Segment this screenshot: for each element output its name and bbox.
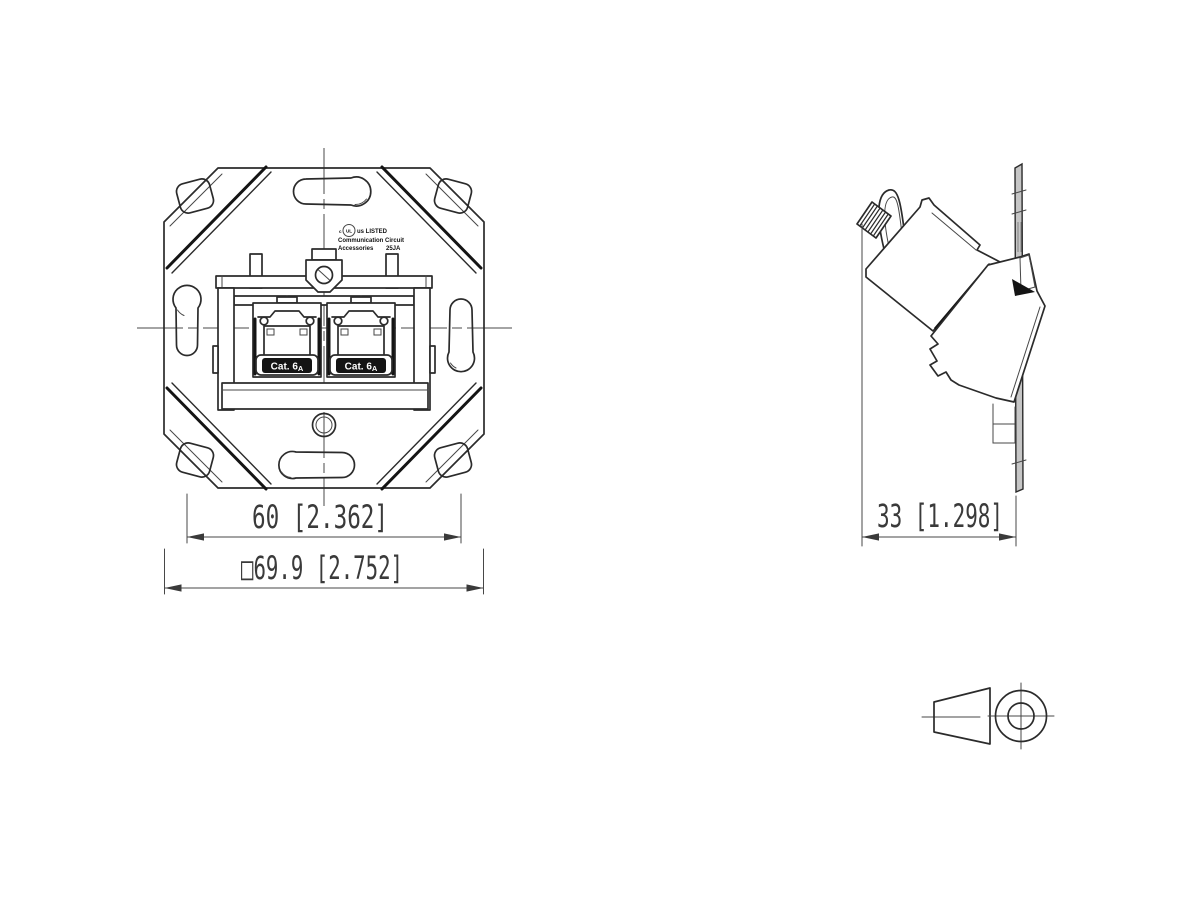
jack-label-main: Cat. 6 <box>345 362 373 373</box>
circle-crosshair <box>988 683 1054 749</box>
rj45-jack-left: Cat. 6A <box>253 297 321 377</box>
keyhole-top <box>294 177 371 206</box>
dim-text-60: 60 [2.362] <box>252 498 388 536</box>
cert-listed: us LISTED <box>357 229 388 235</box>
arrowhead-left <box>165 584 182 591</box>
jack-top-bump <box>277 297 297 303</box>
jack-label-text: Cat. 6A <box>345 362 378 374</box>
certification-mark: c UL us LISTED Communication Circuit Acc… <box>338 225 404 253</box>
cert-prefix: c <box>339 229 342 234</box>
rj45-jack-right: Cat. 6A <box>327 297 395 377</box>
jack-label-sub: A <box>372 364 378 373</box>
jack-top-bump <box>351 297 371 303</box>
arrowhead-right <box>444 533 461 540</box>
arrowhead-left <box>187 533 204 540</box>
cert-line3-right: 25JA <box>386 246 401 252</box>
corner-hole-bottom-right <box>433 441 474 479</box>
lower-bracket <box>993 404 1015 443</box>
cert-logo-text: UL <box>346 229 352 234</box>
dimension-plate-size: □69.9 [2.752] <box>165 549 484 594</box>
claw-top-left <box>167 167 266 268</box>
jack-assembly: Cat. 6A Cat. 6A <box>213 249 435 437</box>
claw-top-right <box>382 167 481 268</box>
jack-label-text: Cat. 6A <box>271 362 304 374</box>
dimension-screw-spacing: 60 [2.362] <box>187 494 461 543</box>
corner-hole-bottom-left <box>175 441 216 479</box>
corner-hole-top-left <box>175 177 216 215</box>
arrowhead-right <box>467 584 484 591</box>
jack-label-main: Cat. 6 <box>271 362 299 373</box>
side-view: 33 [1.298] <box>857 164 1045 546</box>
keyhole-left-inner-arc <box>178 310 185 316</box>
bottom-rail <box>222 383 428 409</box>
keyhole-right <box>448 299 475 372</box>
frame-tab-left <box>213 346 218 373</box>
first-angle-projection-icon <box>922 683 1054 749</box>
jack-label-sub: A <box>298 364 304 373</box>
wall-outlet-drawing: c UL us LISTED Communication Circuit Acc… <box>0 0 1200 900</box>
frustum-side-view <box>934 688 990 744</box>
front-view: c UL us LISTED Communication Circuit Acc… <box>137 148 512 594</box>
dim-text-33: 33 [1.298] <box>877 497 1003 535</box>
keyhole-left <box>173 285 201 355</box>
screw-housing-tab <box>312 249 336 260</box>
dim-text-699: □69.9 [2.752] <box>241 549 403 587</box>
cert-line3-left: Accessories <box>338 246 374 252</box>
cert-line2: Communication Circuit <box>338 238 404 244</box>
corner-hole-top-right <box>433 177 474 215</box>
keyhole-bottom <box>279 452 355 479</box>
frame-tab-right <box>430 346 435 373</box>
technical-drawing-page: c UL us LISTED Communication Circuit Acc… <box>0 0 1200 900</box>
